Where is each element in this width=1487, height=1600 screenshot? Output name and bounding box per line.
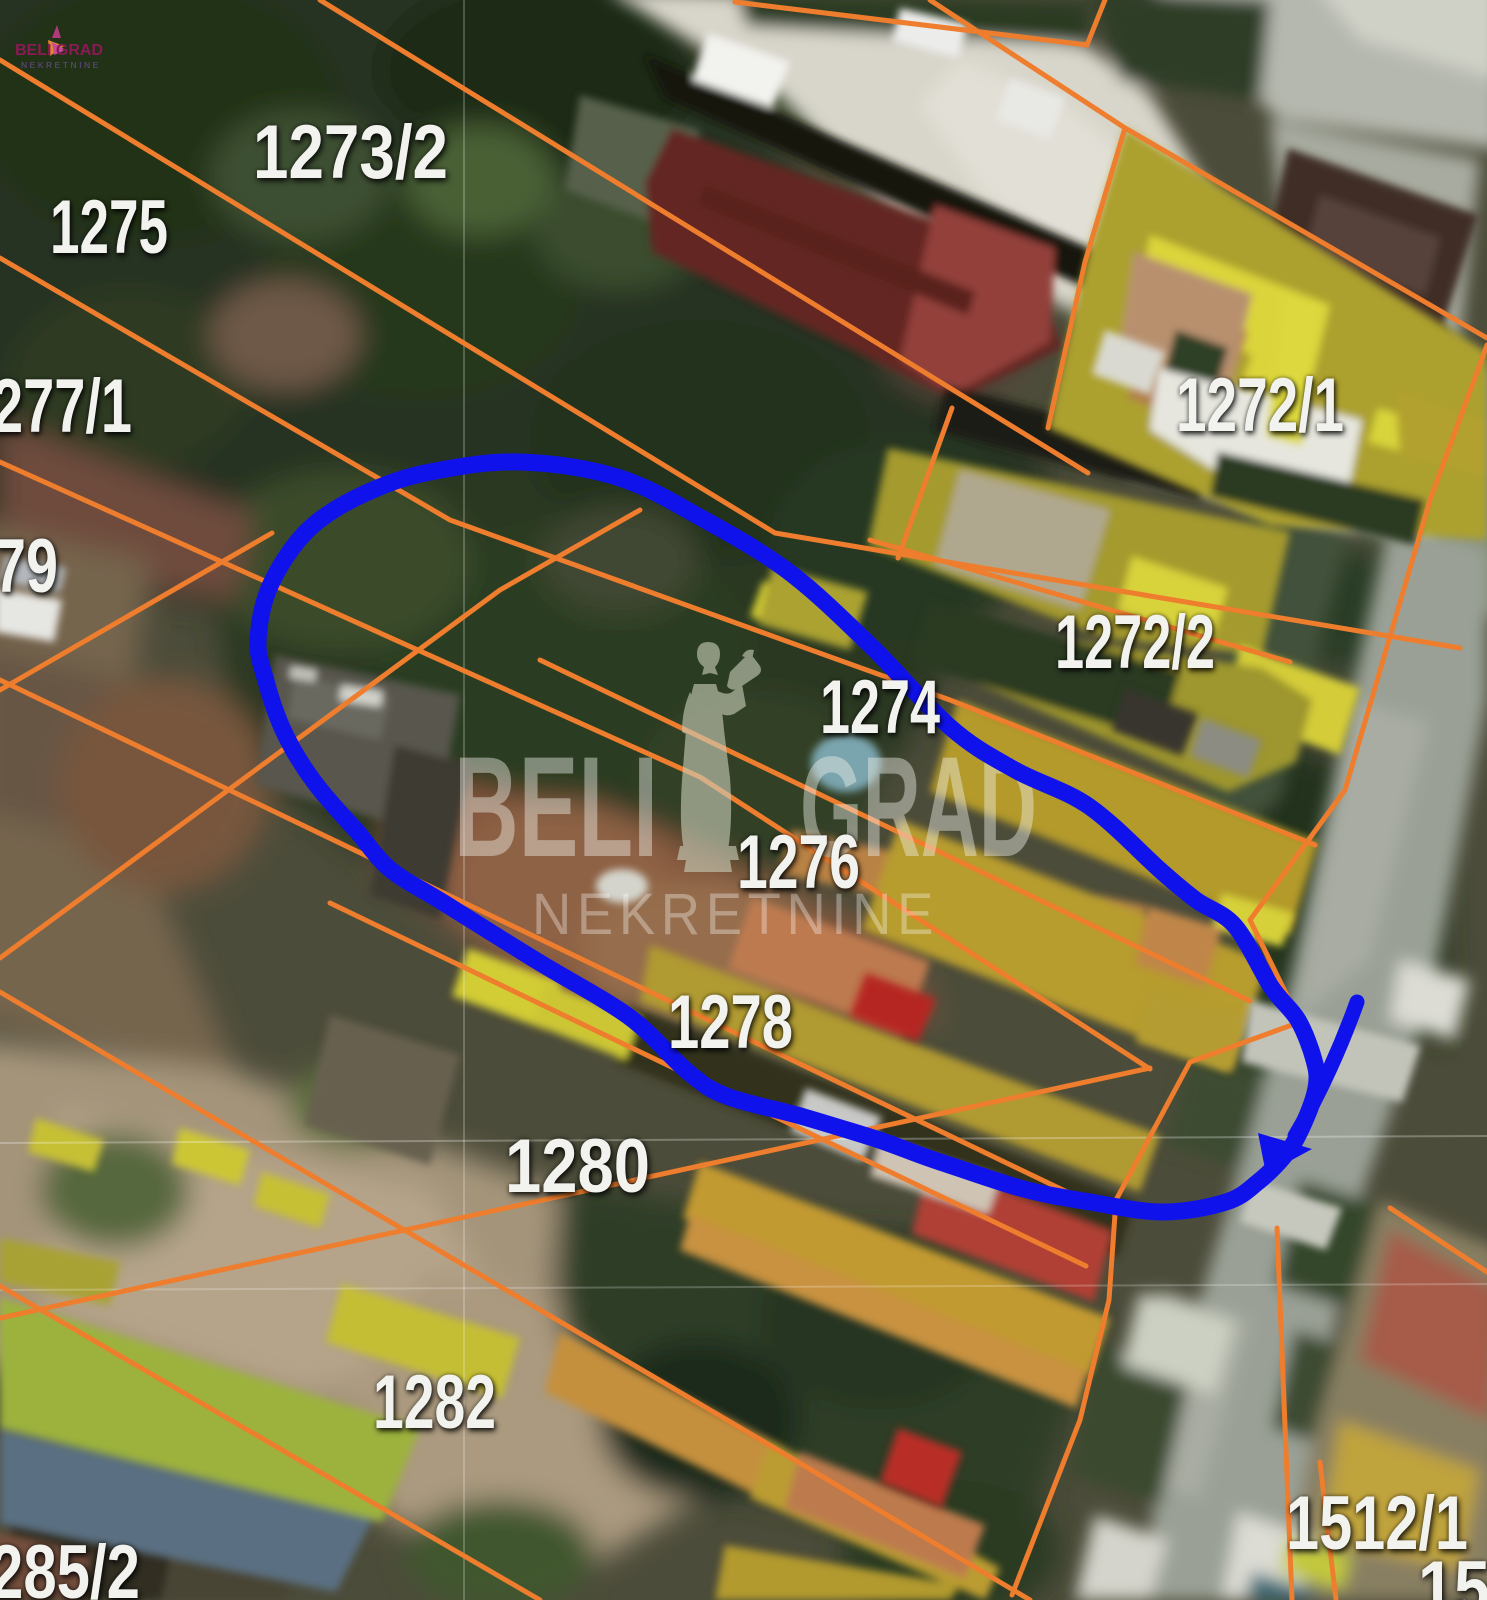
svg-text:1280: 1280 (505, 1124, 650, 1209)
svg-text:NEKRETNINE: NEKRETNINE (532, 882, 939, 947)
svg-text:1272/1: 1272/1 (1176, 363, 1344, 448)
svg-text:1272/2: 1272/2 (1055, 600, 1215, 685)
svg-text:79: 79 (0, 524, 58, 609)
svg-text:NEKRETNINE: NEKRETNINE (21, 60, 101, 70)
svg-text:285/2: 285/2 (0, 1530, 140, 1600)
svg-text:BELI GRAD: BELI GRAD (15, 42, 103, 59)
svg-text:1274: 1274 (820, 665, 940, 750)
svg-text:1282: 1282 (373, 1360, 496, 1445)
svg-text:BELI: BELI (454, 728, 658, 887)
svg-text:277/1: 277/1 (0, 364, 132, 449)
svg-text:1273/2: 1273/2 (253, 110, 448, 195)
svg-text:15: 15 (1418, 1546, 1487, 1600)
svg-text:1275: 1275 (50, 185, 168, 270)
svg-text:1278: 1278 (668, 980, 793, 1065)
svg-text:1276: 1276 (737, 820, 860, 905)
